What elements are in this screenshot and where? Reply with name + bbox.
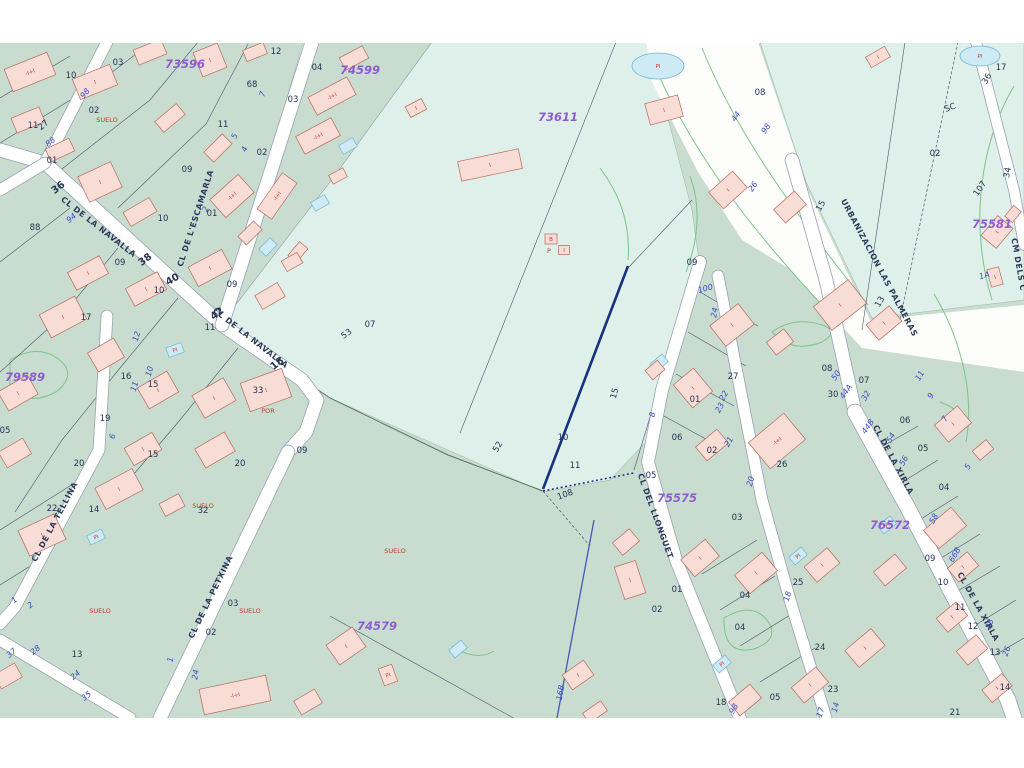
- parcel-number: 25: [793, 578, 804, 588]
- parcel-number: 09: [297, 446, 308, 456]
- parcel-number: 07: [365, 320, 376, 330]
- parcel-number: 20: [74, 459, 85, 469]
- parcel-number: 03: [228, 599, 239, 609]
- parcel-number: 02: [257, 148, 268, 158]
- parcel-number: 04: [740, 591, 751, 601]
- cadastral-map-page: PIPIPIPIPIPIPI-I+IIII-I+I-I+I-I+I-I+IIIB…: [0, 0, 1024, 768]
- parcel-number: 21: [950, 708, 961, 718]
- parcel-number: 24: [815, 643, 826, 653]
- parcel-number: 11: [218, 120, 229, 130]
- parcel-number: 02: [652, 605, 663, 615]
- parcel-number: 10: [558, 433, 569, 443]
- parcel-number: 09: [925, 554, 936, 564]
- parcel-number: 14: [89, 505, 100, 515]
- parcel-number: 17: [996, 63, 1007, 73]
- parcel-number: 04: [312, 63, 323, 73]
- parcel-number: 27: [728, 372, 739, 382]
- parcel-number: 11: [955, 603, 966, 613]
- parcel-number: 30: [828, 390, 839, 400]
- block-number: 75581: [972, 217, 1012, 231]
- block-number: 73611: [538, 110, 578, 124]
- house-number: 24: [709, 307, 720, 319]
- block-number: 75575: [657, 491, 697, 505]
- parcel-number: 15: [148, 450, 159, 460]
- suelo-label: P: [547, 247, 551, 255]
- parcel-number: 09: [687, 258, 698, 268]
- block-number: 79589: [5, 370, 45, 384]
- parcel-number: 06: [900, 416, 911, 426]
- suelo-label: SUELO: [384, 547, 406, 555]
- parcel-number: 02: [930, 149, 941, 159]
- parcel-number: 18: [716, 698, 727, 708]
- parcel-number: 19: [100, 414, 111, 424]
- suelo-label: SUELO: [89, 607, 111, 615]
- suelo-label: SUELO: [96, 116, 118, 124]
- parcel-number: 26: [777, 460, 788, 470]
- parcel-number: 04: [735, 623, 746, 633]
- block-number: 74579: [357, 619, 397, 633]
- parcel-number: 17: [81, 313, 92, 323]
- parcel-number: 02: [707, 446, 718, 456]
- parcel-number: 11: [205, 323, 216, 333]
- parcel-number: 13: [990, 648, 1001, 658]
- pond-label: PI: [978, 54, 983, 60]
- pond-label: PI: [656, 64, 661, 70]
- suelo-label: POR: [261, 407, 275, 415]
- block-number: 74599: [340, 63, 380, 77]
- parcel-number: 10: [66, 71, 77, 81]
- parcel-number: 01: [47, 156, 58, 166]
- parcel-number: 02: [89, 106, 100, 116]
- parcel-number: 10: [938, 578, 949, 588]
- parcel-number: 07: [859, 376, 870, 386]
- parcel-number: 10: [158, 214, 169, 224]
- parcel-number: 01: [690, 395, 701, 405]
- parcel-number: 05: [918, 444, 929, 454]
- map-canvas[interactable]: PIPIPIPIPIPIPI-I+IIII-I+I-I+I-I+I-I+IIIB…: [0, 0, 1024, 768]
- block-number: 76572: [870, 518, 910, 532]
- building-storey-label: B: [549, 237, 553, 243]
- parcel-number: 08: [755, 88, 766, 98]
- parcel-number: 88: [30, 223, 41, 233]
- parcel-number: 23: [828, 685, 839, 695]
- parcel-number: 68: [247, 80, 258, 90]
- parcel-number: 34: [1002, 166, 1014, 178]
- parcel-number: 03: [113, 58, 124, 68]
- parcel-number: 16: [121, 372, 132, 382]
- parcel-number: 05: [770, 693, 781, 703]
- parcel-number: 32: [198, 506, 209, 516]
- parcel-number: 08: [822, 364, 833, 374]
- map-layers: PIPIPIPIPIPIPI-I+IIII-I+I-I+I-I+I-I+IIIB…: [0, 39, 1024, 723]
- parcel-number: 05: [0, 426, 10, 436]
- parcel-number: 11: [570, 461, 581, 471]
- parcel-number: 09: [227, 280, 238, 290]
- parcel-number: 03: [288, 95, 299, 105]
- parcel-number: 04: [939, 483, 950, 493]
- cadastral-map-svg: PIPIPIPIPIPIPI-I+IIII-I+I-I+I-I+I-I+IIIB…: [0, 0, 1024, 768]
- parcel-number: 20: [235, 459, 246, 469]
- parcel-number: 15: [148, 380, 159, 390]
- parcel-number: 09: [115, 258, 126, 268]
- block-number: 73596: [165, 57, 205, 71]
- parcel-number: 12: [271, 47, 282, 57]
- parcel-number: 03: [732, 513, 743, 523]
- parcel-number: 13: [72, 650, 83, 660]
- parcel-number: 12: [968, 622, 979, 632]
- parcel-number: 06: [672, 433, 683, 443]
- parcel-number: 01: [672, 585, 683, 595]
- parcel-number: 33: [253, 386, 264, 396]
- suelo-label: SUELO: [239, 607, 261, 615]
- parcel-number: 02: [206, 628, 217, 638]
- parcel-number: 10: [154, 286, 165, 296]
- parcel-number: 14: [1000, 683, 1011, 693]
- house-number: 24: [190, 669, 201, 681]
- parcel-number: 09: [182, 165, 193, 175]
